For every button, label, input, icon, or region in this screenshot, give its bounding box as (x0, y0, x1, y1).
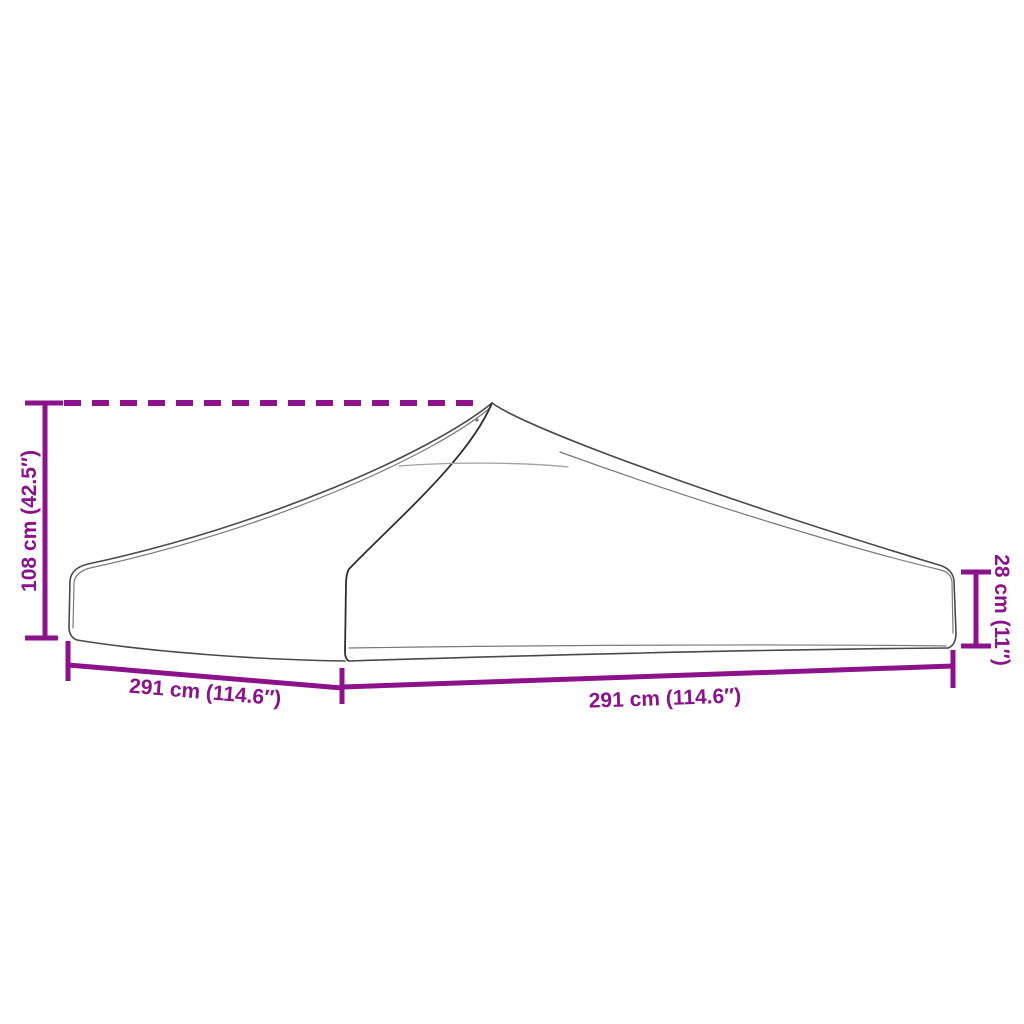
canopy-left-ridge-inner (73, 407, 491, 628)
canopy-back-eave-seam (399, 463, 568, 467)
canopy-left-ridge-outer (69, 403, 492, 640)
dimension-lines (25, 403, 991, 704)
width-right-label: 291 cm (114.6″) (588, 684, 741, 712)
canopy-bottom-left-edge (77, 640, 345, 661)
canopy-right-ridge-outer (492, 403, 956, 648)
canopy-front-ridge (345, 403, 492, 661)
gazebo-canopy-diagram-svg: 108 cm (42.5″) 28 cm (11″) 291 cm (114.6… (0, 0, 1024, 1024)
height-right-label: 28 cm (11″) (990, 554, 1013, 666)
width-right-dimension-line (342, 666, 953, 687)
canopy-peak-stitch-dot (475, 418, 478, 421)
height-left-label: 108 cm (42.5″) (18, 450, 41, 592)
canopy-right-ridge-inner (560, 452, 953, 633)
canopy-back-bottom-edge (349, 645, 946, 648)
canopy-bottom-right-edge (349, 648, 948, 661)
canopy-outline (69, 403, 956, 661)
dimension-diagram: 108 cm (42.5″) 28 cm (11″) 291 cm (114.6… (0, 0, 1024, 1024)
